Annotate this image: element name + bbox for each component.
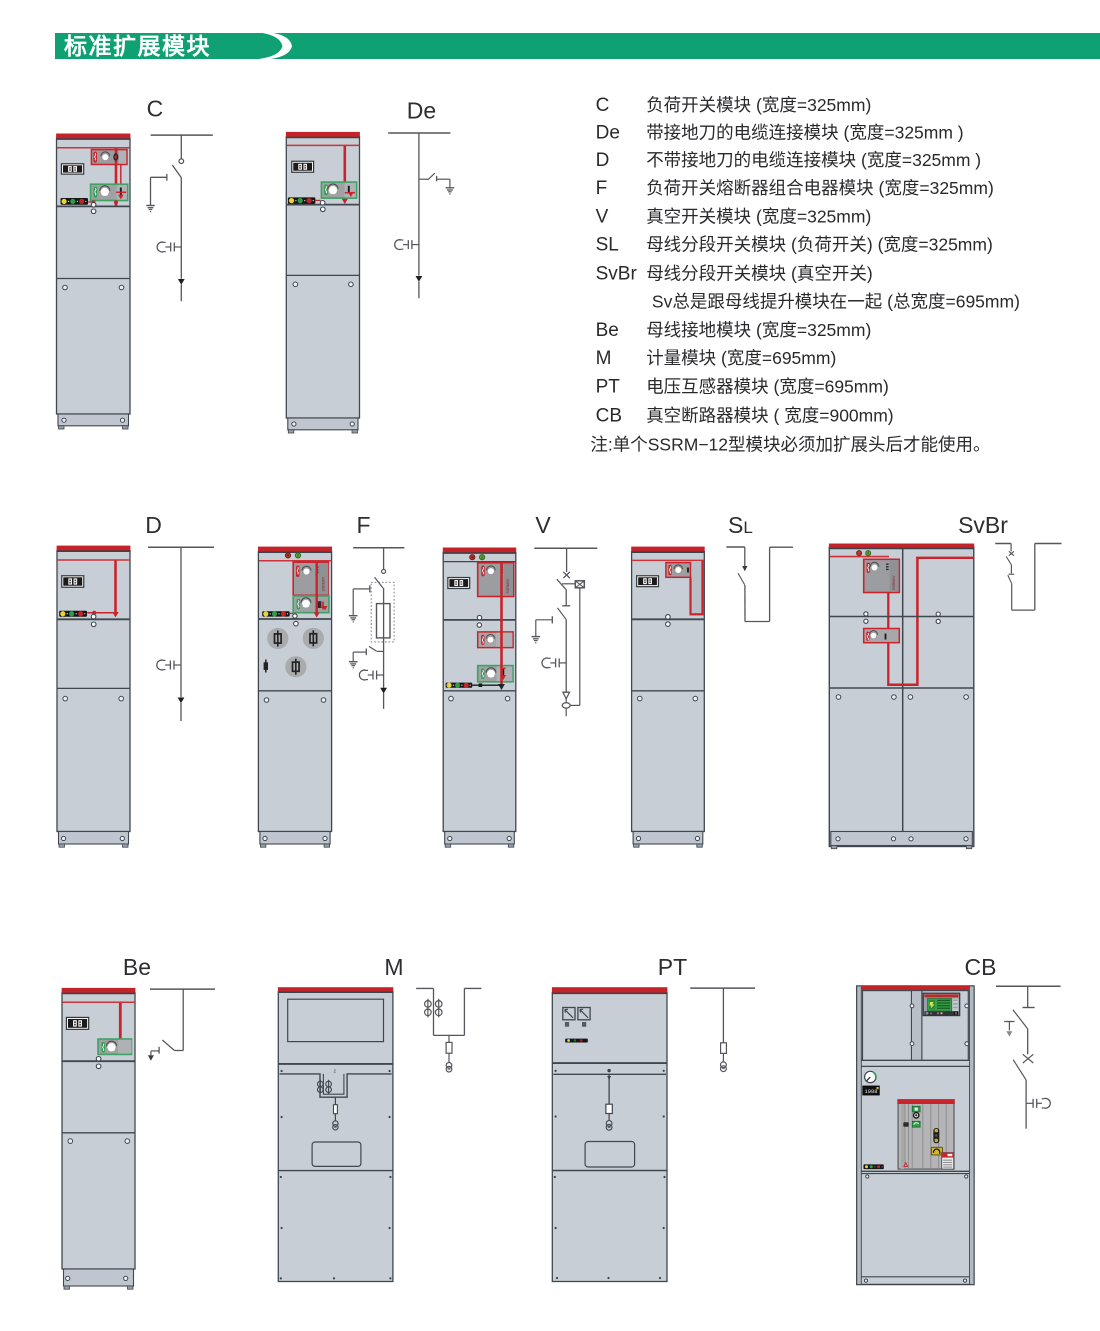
svg-text:负荷开关模块 (宽度=325mm): 负荷开关模块 (宽度=325mm) <box>646 95 871 115</box>
svg-text:V: V <box>596 206 609 227</box>
svg-text:D: D <box>596 150 610 171</box>
svg-text:Sv总是跟母线提升模块在一起 (总宽度=695mm): Sv总是跟母线提升模块在一起 (总宽度=695mm) <box>652 292 1020 312</box>
svg-text:SSRM6V: SSRM6V <box>321 576 325 591</box>
svg-text:CB: CB <box>596 406 622 427</box>
svg-text:De: De <box>596 123 620 144</box>
svg-text:Be: Be <box>596 320 619 341</box>
svg-text:Be: Be <box>123 954 151 980</box>
svg-text:不带接地刀的电缆连接模块 (宽度=325mm ): 不带接地刀的电缆连接模块 (宽度=325mm ) <box>646 150 981 170</box>
svg-text:0: 0 <box>955 1012 957 1016</box>
svg-text:PT: PT <box>596 376 621 397</box>
svg-text:C: C <box>147 96 164 122</box>
svg-text:母线分段开关模块 (真空开关): 母线分段开关模块 (真空开关) <box>646 264 873 284</box>
svg-text:注:单个SSRM−12型模块必须加扩展头后才能使用。: 注:单个SSRM−12型模块必须加扩展头后才能使用。 <box>590 435 990 455</box>
svg-text:De: De <box>407 98 436 124</box>
svg-text:M: M <box>596 348 612 369</box>
svg-text:SvBr: SvBr <box>958 512 1008 538</box>
svg-text:C: C <box>596 95 610 116</box>
svg-text:真空开关模块 (宽度=325mm): 真空开关模块 (宽度=325mm) <box>646 206 871 226</box>
svg-text:1988: 1988 <box>865 1089 878 1095</box>
svg-text:带接地刀的电缆连接模块 (宽度=325mm ): 带接地刀的电缆连接模块 (宽度=325mm ) <box>646 123 963 143</box>
svg-text:SvBr: SvBr <box>596 264 638 285</box>
svg-text:负荷开关熔断器组合电器模块 (宽度=325mm): 负荷开关熔断器组合电器模块 (宽度=325mm) <box>646 178 994 198</box>
svg-text:F: F <box>356 512 370 538</box>
svg-text:SSRM6V: SSRM6V <box>892 575 896 590</box>
svg-text:标准扩展模块: 标准扩展模块 <box>64 33 211 59</box>
svg-text:F: F <box>596 178 608 199</box>
svg-text:电压互感器模块 (宽度=695mm): 电压互感器模块 (宽度=695mm) <box>646 376 889 396</box>
svg-text:SSRM6V: SSRM6V <box>506 578 510 593</box>
svg-text:M: M <box>384 954 403 980</box>
svg-text:CB: CB <box>965 954 997 980</box>
svg-text:D: D <box>145 512 162 538</box>
svg-text:SL: SL <box>596 235 619 256</box>
svg-text:V: V <box>535 512 551 538</box>
svg-text:计量模块 (宽度=695mm): 计量模块 (宽度=695mm) <box>646 348 836 368</box>
svg-text:母线分段开关模块 (负荷开关) (宽度=325mm): 母线分段开关模块 (负荷开关) (宽度=325mm) <box>646 235 993 255</box>
svg-text:真空断路器模块 ( 宽度=900mm): 真空断路器模块 ( 宽度=900mm) <box>646 406 893 426</box>
svg-text:PT: PT <box>658 954 687 980</box>
svg-text:母线接地模块 (宽度=325mm): 母线接地模块 (宽度=325mm) <box>646 320 871 340</box>
